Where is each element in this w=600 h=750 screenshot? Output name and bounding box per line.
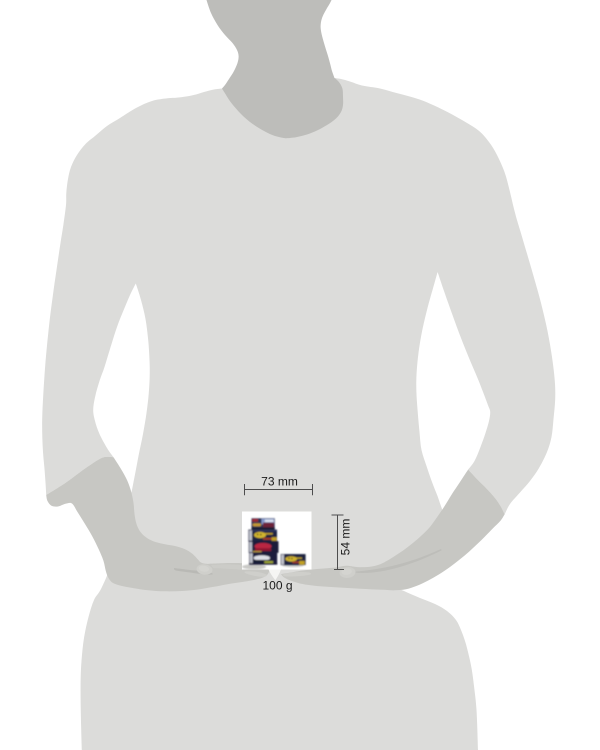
svg-text:73 mm: 73 mm: [261, 475, 298, 489]
svg-text:54 mm: 54 mm: [339, 519, 353, 556]
svg-text:100 g: 100 g: [262, 579, 292, 593]
